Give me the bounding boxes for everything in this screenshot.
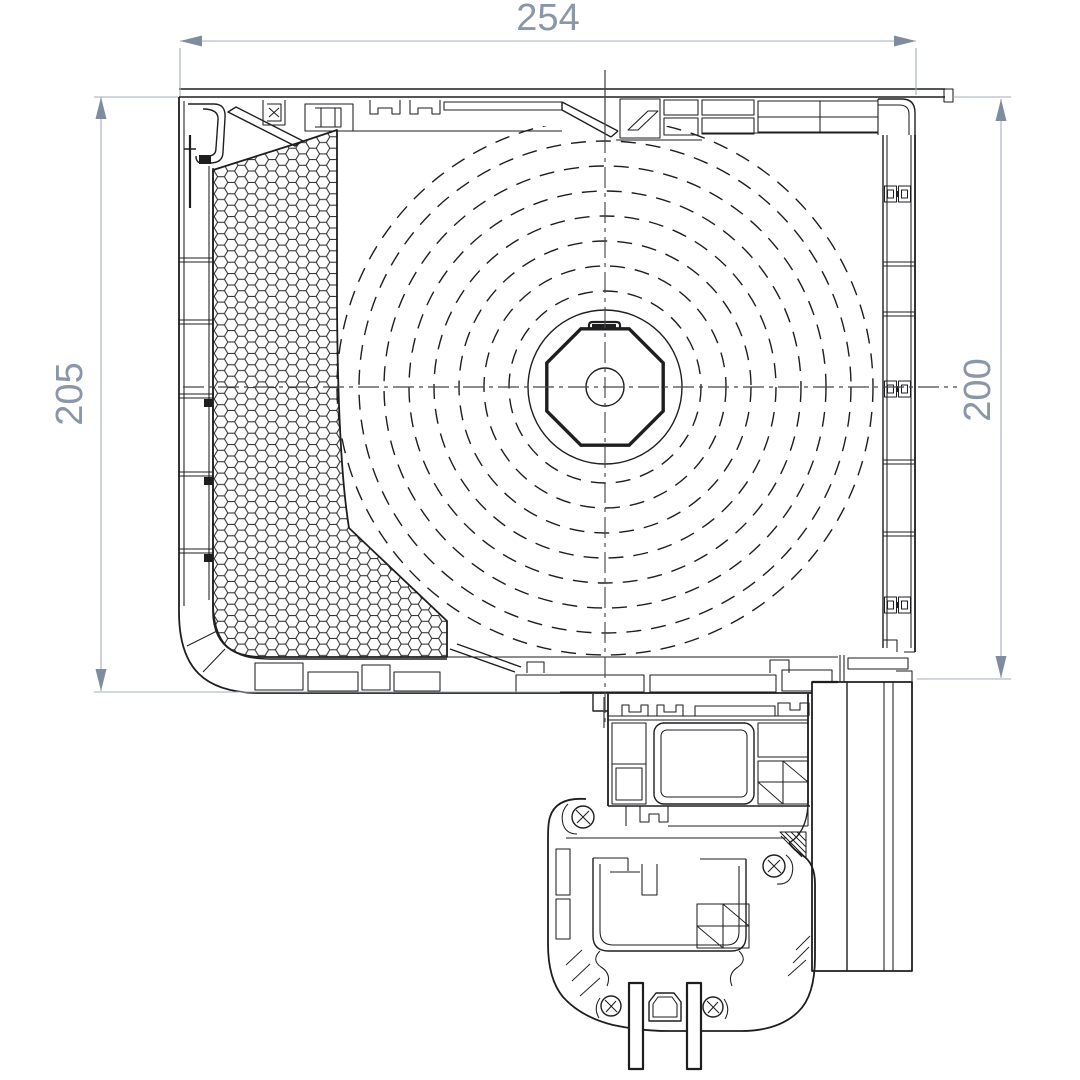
- top-clip-pair: [370, 100, 440, 114]
- right-wall-bottom-step: [883, 640, 915, 652]
- glazing-channel-lips: [593, 858, 746, 895]
- divider-nub-1: [204, 399, 213, 407]
- dim-left-value: 205: [49, 362, 91, 425]
- sash-screw-right-cross: [768, 855, 793, 884]
- corner-hook-foot: [199, 155, 211, 164]
- divider-nub-2: [204, 477, 213, 485]
- dim-left-arrow-top: [96, 97, 107, 119]
- top-right-corner-inner: [878, 99, 909, 135]
- glass-pane-right: [687, 983, 701, 1069]
- insulation-honeycomb: [213, 130, 447, 657]
- sloped-panel: [562, 102, 618, 137]
- dim-right-value: 200: [957, 358, 999, 421]
- sash-bottom-hooks: [596, 951, 744, 986]
- sash-grid-square: [697, 904, 749, 948]
- seal-hatch-wedge: [780, 832, 806, 858]
- z-chamber: [620, 99, 660, 138]
- top-clip-a: [263, 100, 285, 125]
- shaft-clip-fill: [592, 324, 616, 328]
- flat-panel: [444, 102, 562, 110]
- rail-slope: [450, 644, 521, 672]
- box-lid: [179, 89, 953, 102]
- box-right-wall: [883, 135, 915, 652]
- lid-end-cap: [944, 89, 953, 102]
- diagonal-strut: [228, 107, 303, 146]
- window-frame-profile: [593, 694, 810, 843]
- guide-rail-curtain: [812, 682, 912, 971]
- glazing-unit: [629, 983, 701, 1069]
- box-left-wall: [179, 97, 213, 612]
- glazing-spacer-inner: [653, 997, 677, 1017]
- section-drawing: 254 205 200: [0, 0, 1080, 1080]
- connector-nub-bottom: [896, 602, 899, 608]
- frame-bottom-foot: [626, 806, 808, 826]
- sash-left-chambers: [556, 849, 570, 939]
- dim-width-arrow-left: [180, 36, 202, 47]
- seal-hatch-lines: [781, 832, 806, 857]
- left-wall-lines: [184, 101, 209, 606]
- mid-chambers: [702, 100, 754, 134]
- connector-nub-top: [896, 191, 899, 197]
- right-wall-connector-blocks: [885, 186, 911, 613]
- drawing-canvas: 254 205 200: [0, 0, 1080, 1080]
- dimension-height-right: 200: [917, 97, 1011, 679]
- right-wall-dividers: [883, 262, 915, 536]
- frame-steel-chamber-inner: [661, 730, 747, 797]
- dimension-width: 254: [180, 0, 916, 96]
- dim-left-arrow-bottom: [96, 669, 107, 691]
- dim-right-arrow-bottom: [996, 656, 1007, 678]
- window-sash-profile: [548, 799, 815, 1031]
- frame-left-chambers: [612, 723, 646, 804]
- frame-right-transition: [789, 806, 808, 843]
- lid-plate: [179, 89, 945, 97]
- dim-width-value: 254: [516, 0, 579, 39]
- sash-outer-outline: [548, 799, 815, 1031]
- frame-top-shelf: [608, 716, 808, 720]
- divider-nub-3: [204, 554, 213, 562]
- frame-right-grid: [758, 723, 808, 804]
- curtain-stack-body: [812, 682, 912, 971]
- dim-width-arrow-right: [894, 36, 916, 47]
- dim-right-arrow-top: [996, 99, 1007, 121]
- glass-pane-left: [629, 983, 643, 1069]
- frame-steel-chamber-outer: [654, 723, 754, 804]
- honeycomb-fill: [213, 130, 447, 657]
- top-chamber-b: [305, 104, 353, 131]
- frame-top-hooks: [622, 703, 809, 716]
- rail-clips: [527, 660, 789, 673]
- frame-left-flange: [593, 694, 608, 711]
- long-chamber: [758, 101, 878, 132]
